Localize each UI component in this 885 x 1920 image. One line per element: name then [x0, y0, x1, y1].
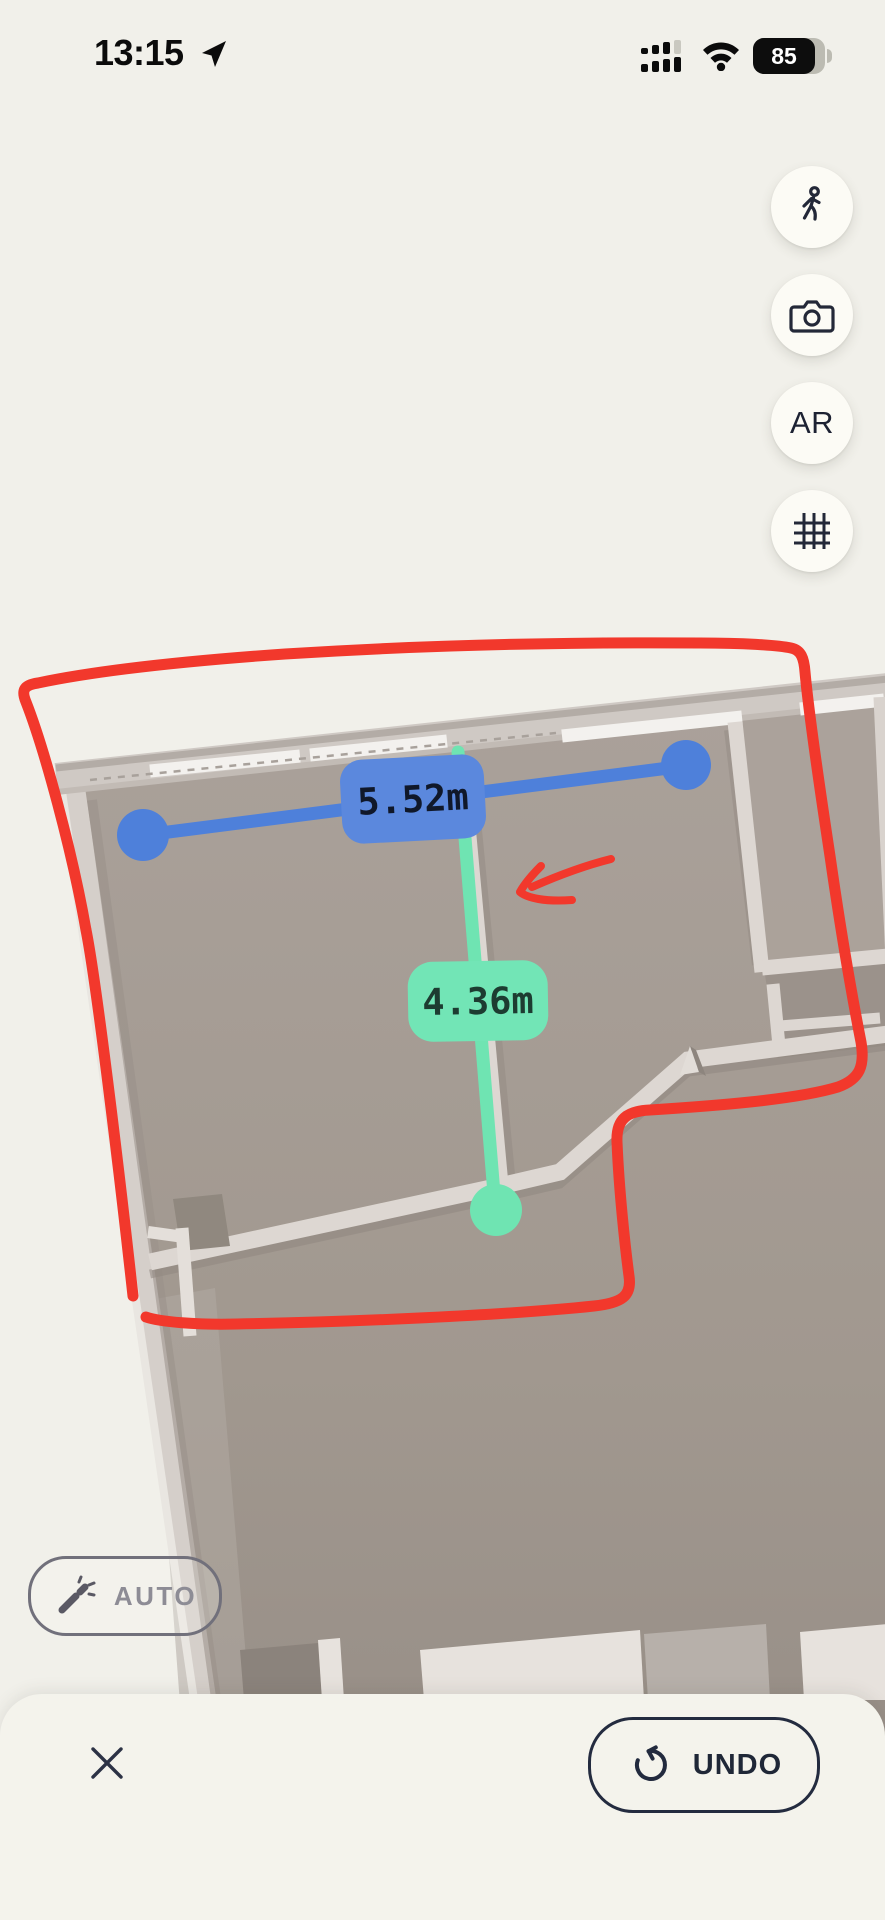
- blue-endpoint-left[interactable]: [117, 809, 169, 861]
- blue-endpoint-right[interactable]: [661, 740, 711, 790]
- measurement-label-vertical[interactable]: 4.36m: [407, 960, 548, 1042]
- clock: 13:15: [94, 32, 184, 74]
- magic-wand-icon: [53, 1573, 99, 1619]
- location-arrow-icon: [200, 40, 228, 68]
- grid-view-button[interactable]: [771, 490, 853, 572]
- ar-button-label: AR: [790, 405, 834, 441]
- green-endpoint[interactable]: [470, 1184, 522, 1236]
- measurement-label-horizontal[interactable]: 5.52m: [339, 753, 487, 844]
- battery-percent: 85: [771, 43, 797, 70]
- grid-icon: [790, 509, 834, 553]
- undo-icon: [626, 1740, 676, 1790]
- app-screen: 5.52m 4.36m 13:15 85: [0, 0, 885, 1920]
- auto-button-label: AUTO: [114, 1581, 197, 1612]
- wifi-icon: [701, 41, 741, 71]
- close-x-icon: [88, 1744, 126, 1782]
- camera-icon: [788, 293, 836, 337]
- battery-icon: 85: [753, 38, 825, 74]
- close-button[interactable]: [80, 1736, 134, 1790]
- walk-mode-button[interactable]: [771, 166, 853, 248]
- undo-button[interactable]: UNDO: [588, 1717, 820, 1813]
- undo-button-label: UNDO: [693, 1749, 782, 1782]
- camera-button[interactable]: [771, 274, 853, 356]
- ar-mode-button[interactable]: AR: [771, 382, 853, 464]
- auto-button[interactable]: AUTO: [28, 1556, 222, 1636]
- cellular-signal-icon: [639, 40, 689, 72]
- walking-person-icon: [789, 184, 835, 230]
